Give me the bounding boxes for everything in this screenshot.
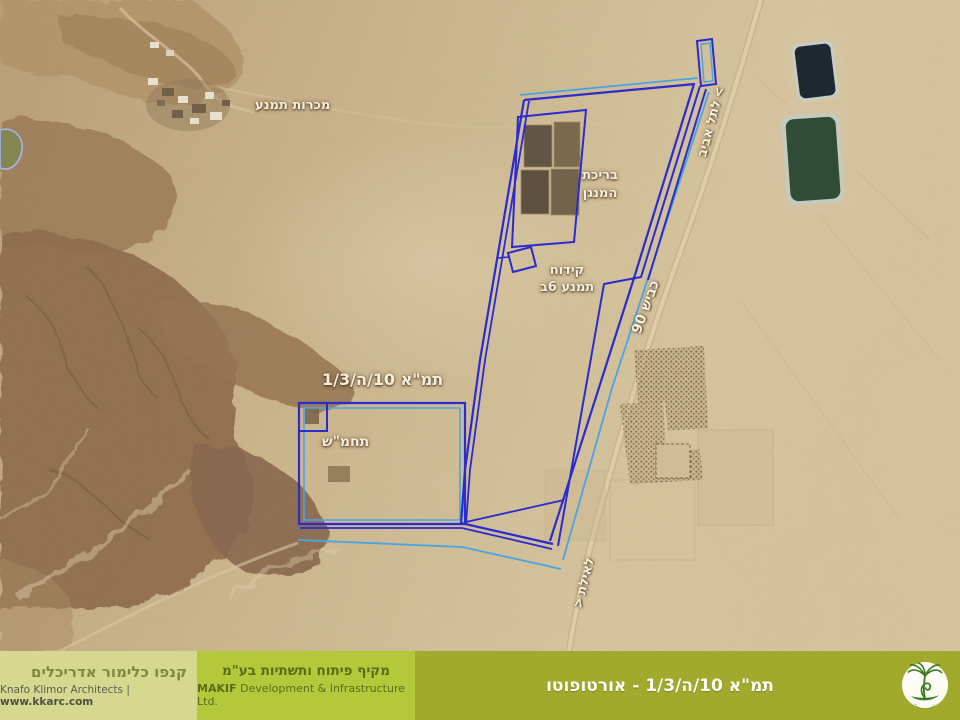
label-substation: תחמ"ש	[322, 434, 369, 450]
slide-title-section: תמ"א 10/ה/1/3 - אורטופוטו	[415, 651, 960, 720]
presentation-slide: מכרות תמנע בריכת המנגן קידוח תמנע 6ב תמ"…	[0, 0, 960, 720]
label-manganese-pool-line2: המנגן	[570, 185, 630, 203]
satellite-terrain	[0, 0, 960, 651]
developer-name-en-bold: MAKIF	[197, 682, 237, 695]
label-timna-mines: מכרות תמנע	[255, 98, 330, 113]
developer-name-hebrew: מקיף פיתוח ותשתיות בע"מ	[222, 663, 390, 679]
architect-name-hebrew: קנפו כלימור אדריכלים	[31, 663, 187, 681]
label-drilling-line2: תמנע 6ב	[528, 279, 606, 296]
label-plan-area: תמ"א 10/ה/1/3	[322, 370, 443, 389]
architect-website: www.kkarc.com	[0, 696, 93, 708]
label-manganese-pool-line1: בריכת	[570, 167, 630, 185]
label-drilling-timna-6b: קידוח תמנע 6ב	[528, 262, 606, 296]
footer-bar: קנפו כלימור אדריכלים Knafo Klimor Archit…	[0, 651, 960, 720]
developer-credit-section: מקיף פיתוח ותשתיות בע"מ MAKIF Developmen…	[197, 651, 415, 720]
developer-name-english: MAKIF Development & Infrastructure Ltd.	[197, 682, 415, 708]
slide-title: תמ"א 10/ה/1/3 - אורטופוטו	[546, 676, 829, 696]
architect-separator: |	[126, 684, 130, 696]
tree-logo-icon	[901, 661, 949, 709]
label-manganese-pool: בריכת המנגן	[570, 167, 630, 203]
architect-name-en-text: Knafo Klimor Architects	[0, 684, 123, 696]
architect-credit-section: קנפו כלימור אדריכלים Knafo Klimor Archit…	[0, 651, 197, 720]
label-drilling-line1: קידוח	[528, 262, 606, 279]
architect-name-english: Knafo Klimor Architects | www.kkarc.com	[0, 684, 187, 708]
orthophoto-map: מכרות תמנע בריכת המנגן קידוח תמנע 6ב תמ"…	[0, 0, 960, 651]
